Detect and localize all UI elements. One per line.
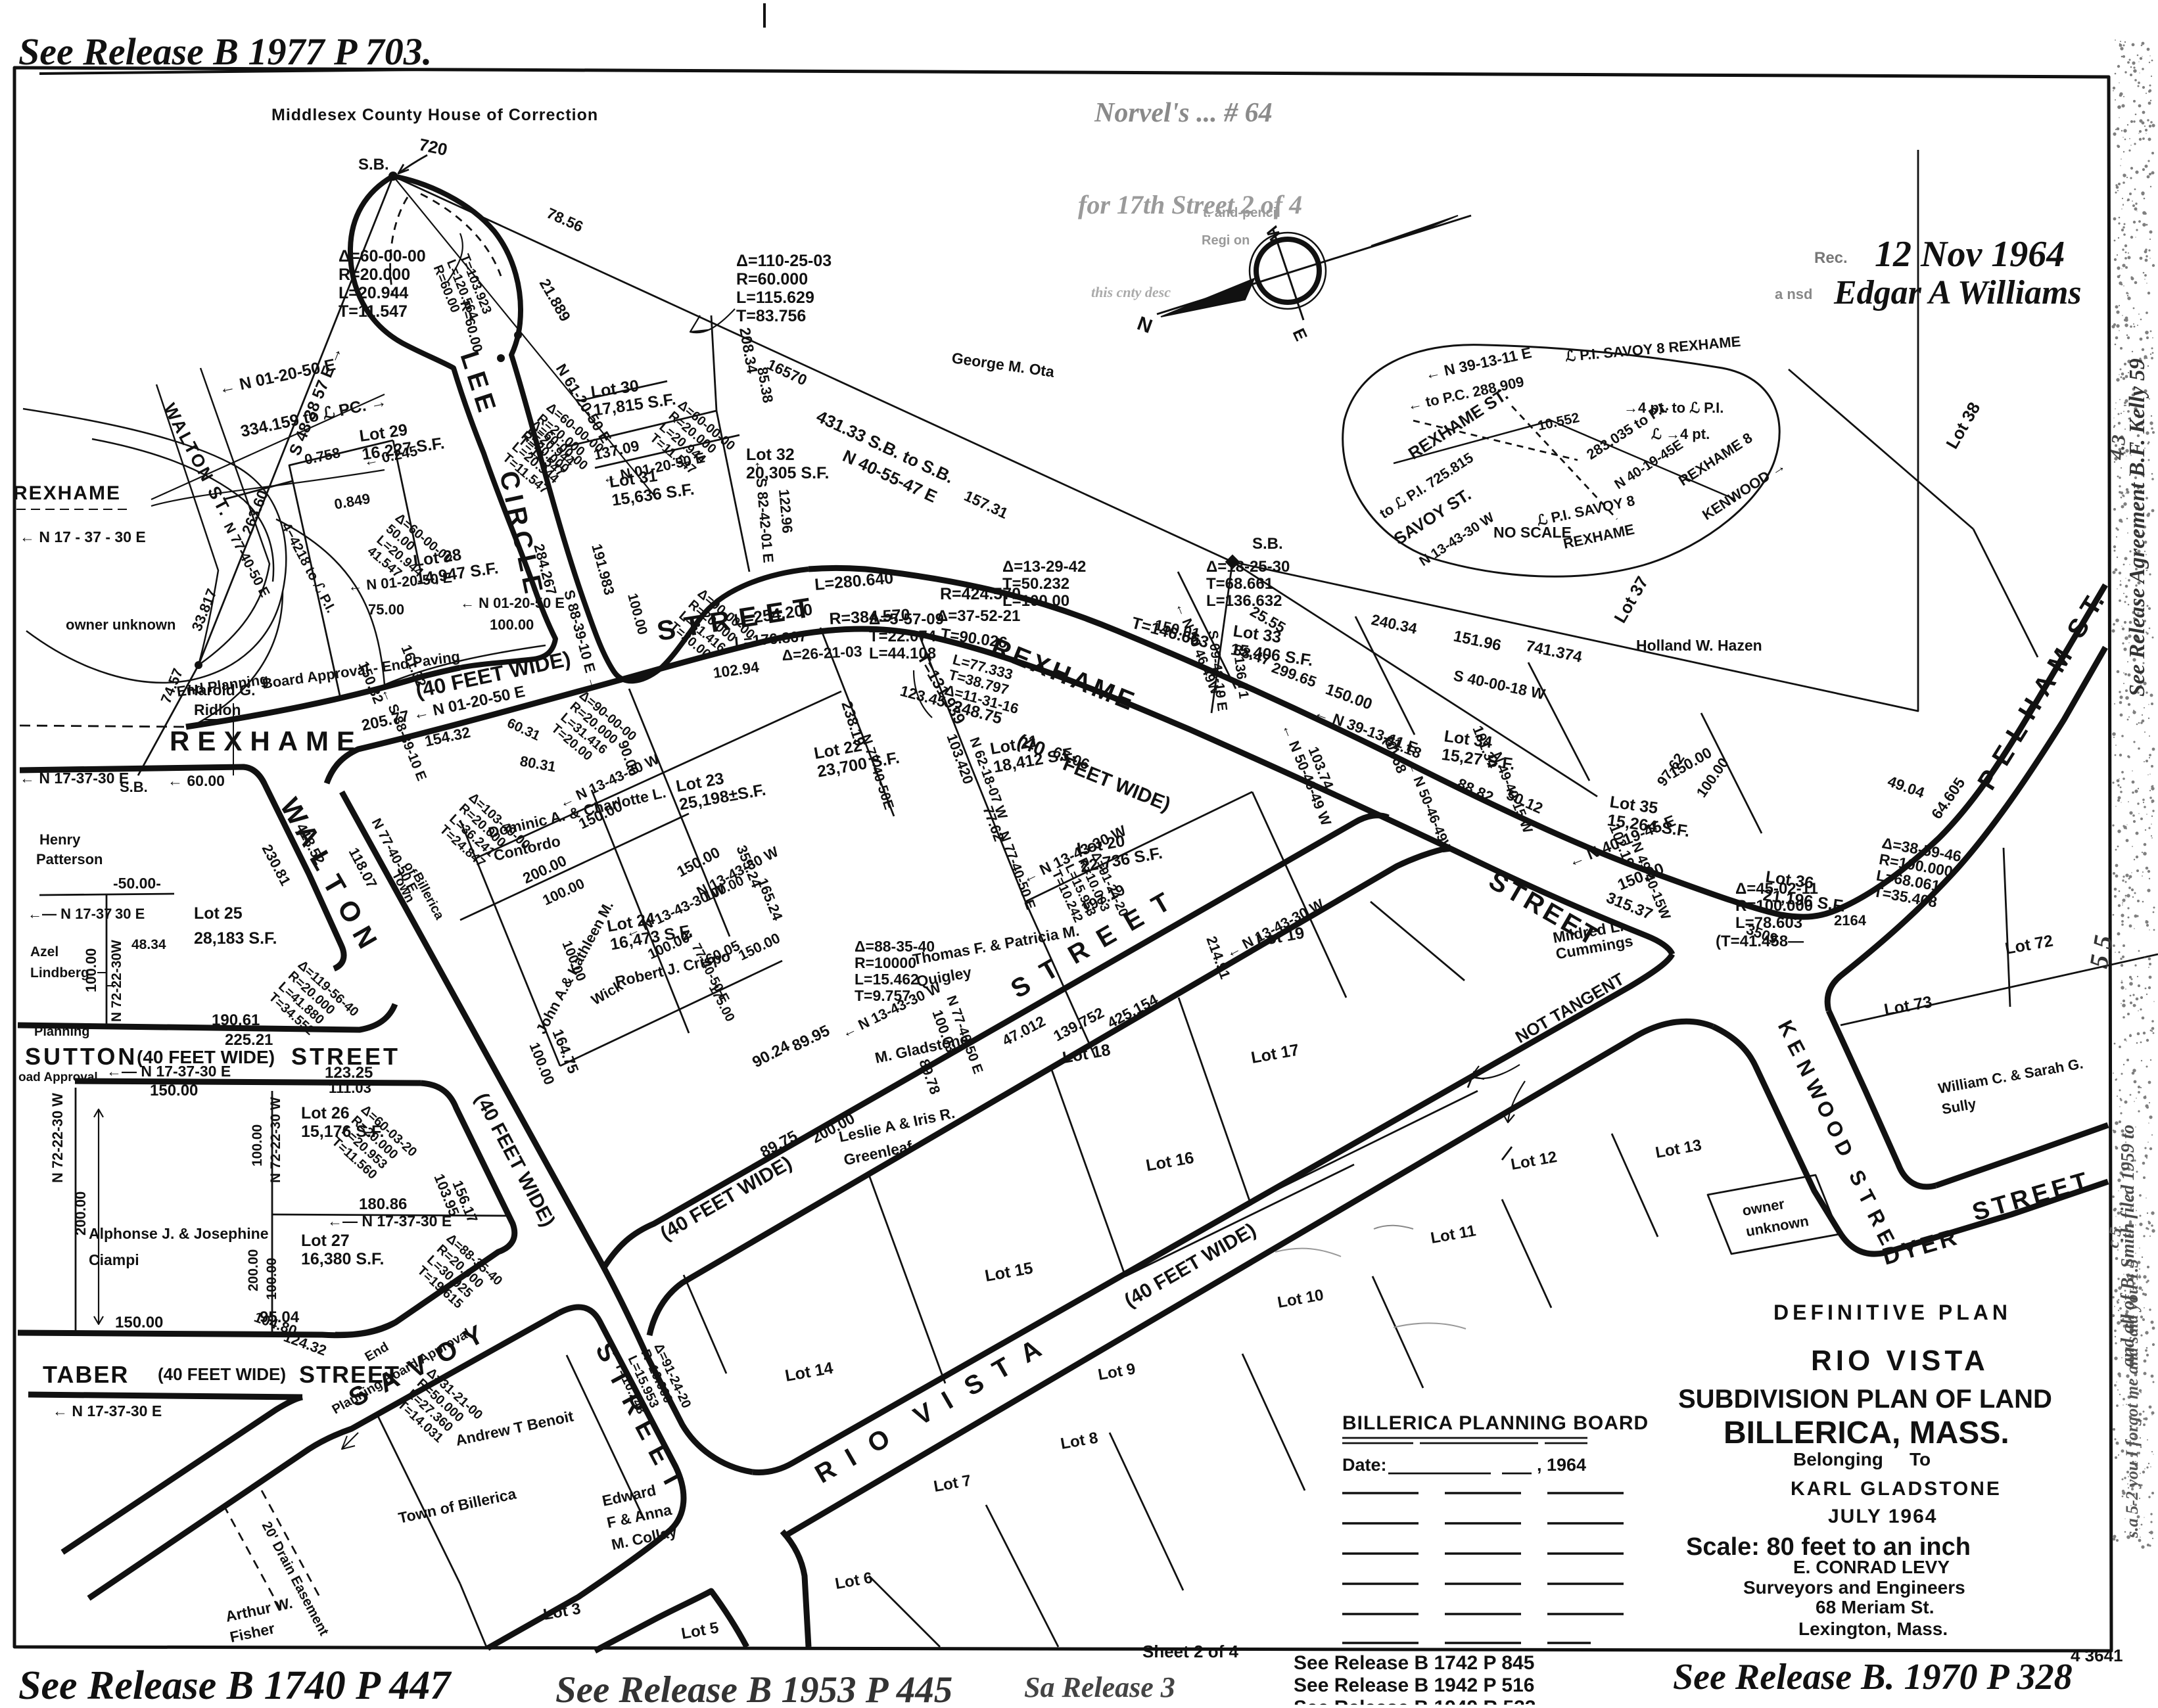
svg-text:Middlesex County House of: Middlesex County House of Correction <box>271 106 598 124</box>
svg-text:Alphonse J. & Josephine: Alphonse J. & Josephine <box>89 1225 269 1242</box>
svg-text:N 72-22-30 W: N 72-22-30 W <box>268 1097 283 1183</box>
svg-text:See Release B 1942 P 516: See Release B 1942 P 516 <box>1294 1674 1534 1696</box>
svg-text:See Release B 1953 P 445: See Release B 1953 P 445 <box>555 1669 952 1705</box>
svg-text:4 3641: 4 3641 <box>2071 1646 2123 1665</box>
svg-text:L=100.00: L=100.00 <box>1002 592 1069 610</box>
svg-text:See Release B 1949 R 533: See Release B 1949 R 533 <box>1294 1697 1536 1705</box>
svg-text:Edgar A Williams: Edgar A Williams <box>1833 274 2082 312</box>
svg-text:4.3: 4.3 <box>2106 434 2130 461</box>
svg-text:a nsd: a nsd <box>1775 286 1812 302</box>
svg-text:← N 01-20-50 E: ← N 01-20-50 E <box>460 595 565 611</box>
svg-text:← N 17-37-30 E: ← N 17-37-30 E <box>53 1402 162 1419</box>
svg-text:28,183 S.F.: 28,183 S.F. <box>194 929 277 948</box>
svg-text:L=136.632: L=136.632 <box>1206 592 1282 610</box>
svg-text:Henry: Henry <box>39 831 81 848</box>
svg-text:150.00: 150.00 <box>150 1082 198 1099</box>
svg-text:REXHAME: REXHAME <box>170 726 363 756</box>
svg-text:30 E: 30 E <box>115 906 145 922</box>
svg-text:See Release B 1742 P 845: See Release B 1742 P 845 <box>1294 1652 1534 1674</box>
svg-text:S.B.: S.B. <box>1252 535 1283 553</box>
svg-text:Δ=37-52-21: Δ=37-52-21 <box>937 607 1020 625</box>
svg-text:, 1964: , 1964 <box>1537 1455 1586 1475</box>
svg-text:See Release B 1977 P 703.: See Release B 1977 P 703. <box>18 30 432 73</box>
svg-text:Regi on: Regi on <box>1202 233 1250 248</box>
svg-text:BILLERICA, MASS.: BILLERICA, MASS. <box>1724 1416 2009 1450</box>
svg-text:SUBDIVISION PLAN OF LAND: SUBDIVISION PLAN OF LAND <box>1678 1385 2052 1414</box>
svg-text:T=83.756: T=83.756 <box>736 307 806 325</box>
svg-text:Surveyors and Engineers: Surveyors and Engineers <box>1743 1577 1965 1598</box>
svg-text:Holland W. Hazen: Holland W. Hazen <box>1636 637 1762 654</box>
svg-text:DEFINITIVE PLAN: DEFINITIVE PLAN <box>1773 1301 2011 1324</box>
svg-text:T=50.232: T=50.232 <box>1002 575 1069 593</box>
svg-text:5 5: 5 5 <box>2084 933 2119 971</box>
svg-text:← N 17-37-30 E: ← N 17-37-30 E <box>20 770 129 787</box>
svg-text:owner unknown: owner unknown <box>66 616 176 633</box>
svg-text:See Release B 1740 P 447: See Release B 1740 P 447 <box>18 1663 452 1705</box>
svg-text:T=9.757: T=9.757 <box>855 987 910 1004</box>
svg-text:TABER: TABER <box>43 1361 129 1388</box>
svg-text:RIO VISTA: RIO VISTA <box>1811 1345 1989 1377</box>
svg-text:R=60.000: R=60.000 <box>736 270 808 289</box>
svg-text:100.00: 100.00 <box>264 1258 279 1300</box>
svg-text:48.34: 48.34 <box>131 937 166 952</box>
svg-text:L=15.462: L=15.462 <box>855 971 919 988</box>
svg-text:oad Approval: oad Approval <box>18 1071 98 1084</box>
svg-text:t. and-pencil: t. and-pencil <box>1203 206 1280 220</box>
svg-text:Azel: Azel <box>30 944 59 959</box>
svg-text:Δ=110-25-03: Δ=110-25-03 <box>736 252 832 270</box>
svg-text:R=10000: R=10000 <box>855 954 916 971</box>
svg-text:(40 FEET WIDE): (40 FEET WIDE) <box>158 1364 286 1384</box>
svg-text:Δ=13-29-42: Δ=13-29-42 <box>1002 558 1086 576</box>
svg-text:L=20.944: L=20.944 <box>339 284 408 302</box>
svg-text:NO SCALE: NO SCALE <box>1493 524 1572 541</box>
svg-text:225.21: 225.21 <box>225 1031 273 1049</box>
svg-text:←— N 17-37-30 E: ←— N 17-37-30 E <box>327 1212 452 1230</box>
svg-text:N 72-22-30 W: N 72-22-30 W <box>49 1093 66 1183</box>
svg-text:Planning: Planning <box>34 1025 89 1039</box>
svg-text:Patterson: Patterson <box>36 851 103 867</box>
svg-text:ℒ →4 pt.: ℒ →4 pt. <box>1651 426 1710 442</box>
svg-text:N 72-22-30W: N 72-22-30W <box>109 940 124 1022</box>
svg-text:180.86: 180.86 <box>359 1195 407 1213</box>
svg-text:12 Nov 1964: 12 Nov 1964 <box>1875 234 2065 275</box>
svg-text:T=68.661: T=68.661 <box>1206 575 1273 593</box>
svg-text:Date:: Date: <box>1342 1455 1387 1475</box>
svg-text:100.00: 100.00 <box>490 616 534 633</box>
svg-text:Norvel's ... # 64: Norvel's ... # 64 <box>1094 98 1273 128</box>
svg-text:To: To <box>1910 1449 1931 1469</box>
svg-text:123.25: 123.25 <box>325 1064 373 1082</box>
svg-text:← 60.00: ← 60.00 <box>168 772 225 789</box>
svg-text:Δ=18-25-30: Δ=18-25-30 <box>1206 558 1290 576</box>
svg-text:Δ=5-57-09: Δ=5-57-09 <box>869 611 944 628</box>
svg-text:-50.00-: -50.00- <box>113 875 161 892</box>
svg-text:Lot 25: Lot 25 <box>194 904 243 923</box>
svg-text:111.03: 111.03 <box>329 1080 371 1096</box>
svg-text:Ciampi: Ciampi <box>89 1251 139 1268</box>
svg-text:16,380 S.F.: 16,380 S.F. <box>301 1250 384 1268</box>
svg-text:68 Meriam St.: 68 Meriam St. <box>1816 1597 1935 1617</box>
svg-text:Lexington, Mass.: Lexington, Mass. <box>1798 1619 1948 1639</box>
svg-text:Sa Release 3: Sa Release 3 <box>1024 1671 1175 1703</box>
svg-text:Lindberg: Lindberg <box>30 965 89 981</box>
svg-text:JULY 1964: JULY 1964 <box>1828 1506 1937 1527</box>
svg-text:S.B.: S.B. <box>358 156 389 173</box>
svg-text:Sheet 2 of 4: Sheet 2 of 4 <box>1142 1642 1238 1661</box>
svg-text:See Release B. 1970 P 328: See Release B. 1970 P 328 <box>1673 1657 2073 1697</box>
svg-text:← N 17 - 37 - 30 E: ← N 17 - 37 - 30 E <box>20 528 146 545</box>
svg-text:100.00: 100.00 <box>83 948 99 992</box>
svg-text:REXHAME: REXHAME <box>13 482 121 504</box>
svg-text:BILLERICA PLANNING BOARD: BILLERICA PLANNING BOARD <box>1342 1412 1649 1434</box>
svg-text:T=22.074: T=22.074 <box>869 628 937 645</box>
svg-text:200.00: 200.00 <box>246 1249 261 1291</box>
svg-text:200.00: 200.00 <box>72 1191 89 1235</box>
svg-text:←— N 17-37-30 E: ←— N 17-37-30 E <box>106 1063 231 1080</box>
svg-text:190.61: 190.61 <box>212 1011 260 1029</box>
svg-text:75.00: 75.00 <box>368 601 404 618</box>
svg-text:Δ=88-35-40: Δ=88-35-40 <box>855 938 935 955</box>
svg-text:this cnty desc: this cnty desc <box>1091 284 1171 300</box>
svg-text:Belonging: Belonging <box>1793 1449 1883 1469</box>
svg-text:←— N 17-37: ←— N 17-37 <box>28 906 112 922</box>
svg-text:150.00: 150.00 <box>115 1314 163 1331</box>
svg-text:100.00: 100.00 <box>250 1124 265 1166</box>
svg-text:See Release Agreement B.F. Kel: See Release Agreement B.F. Kelly 59 <box>2125 358 2149 697</box>
svg-text:E. CONRAD LEVY: E. CONRAD LEVY <box>1793 1557 1950 1577</box>
svg-text:Rec.: Rec. <box>1814 249 1848 267</box>
svg-text:KARL GLADSTONE: KARL GLADSTONE <box>1791 1478 2002 1500</box>
svg-text:Lot 26: Lot 26 <box>301 1104 350 1122</box>
svg-text:c 5: c 5 <box>2103 1226 2125 1249</box>
svg-text:Lot 27: Lot 27 <box>301 1232 350 1250</box>
svg-text:L=115.629: L=115.629 <box>736 289 814 307</box>
